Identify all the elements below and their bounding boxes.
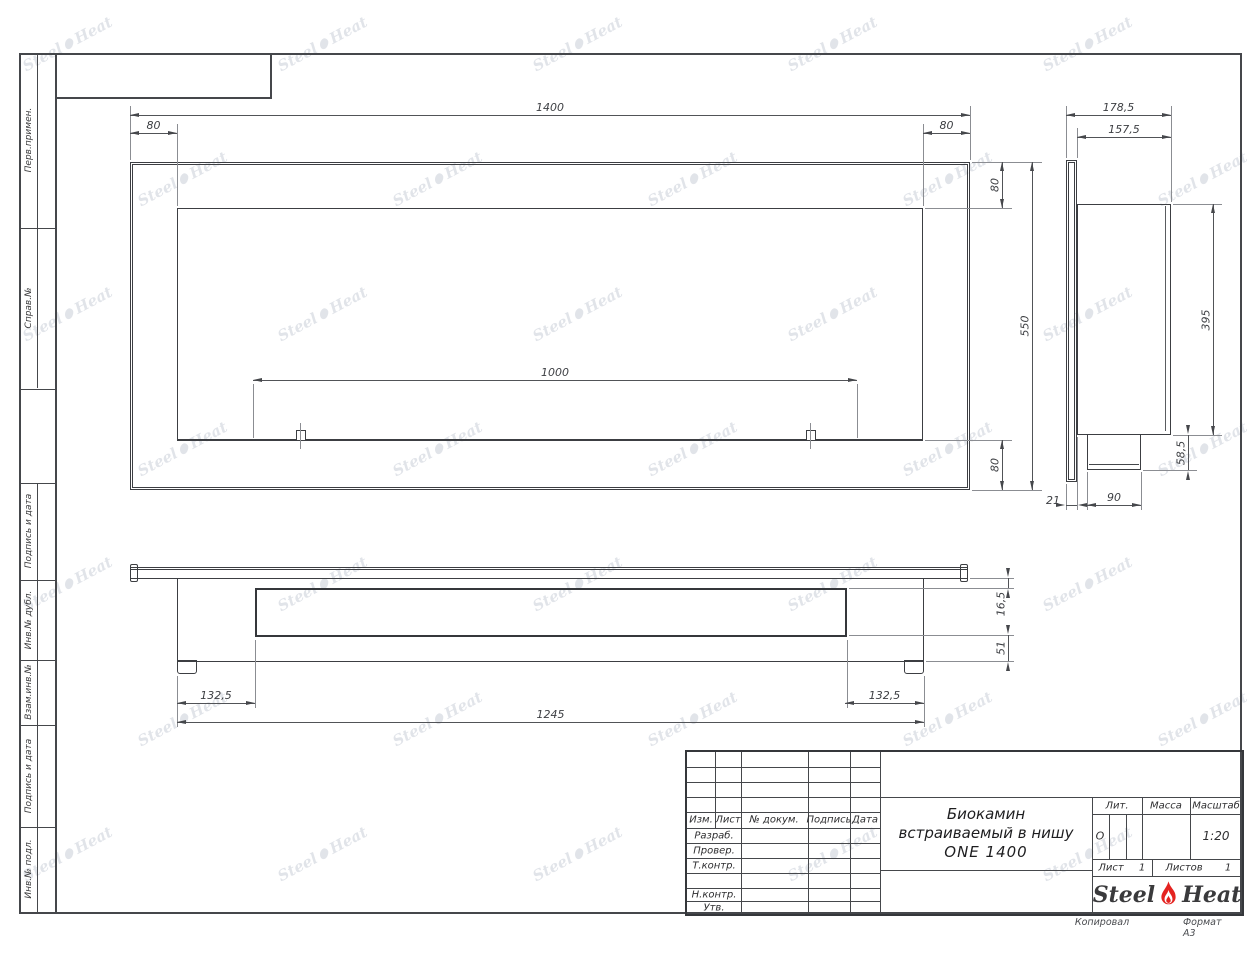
dim-side-box-depth: 90 bbox=[1087, 505, 1141, 506]
extension-line bbox=[923, 124, 924, 206]
logo-text-steel: Steel bbox=[1093, 882, 1155, 908]
extension-line bbox=[849, 635, 1014, 636]
document-name-line3: ONE 1400 bbox=[944, 843, 1027, 862]
extension-line bbox=[857, 384, 858, 438]
side-view-body bbox=[1077, 204, 1171, 435]
margin-divider bbox=[19, 827, 55, 828]
extension-line bbox=[1141, 472, 1142, 510]
bottom-view-flange-cap-left bbox=[130, 564, 138, 582]
extension-line bbox=[1077, 437, 1078, 510]
flame-icon bbox=[1159, 881, 1178, 907]
extension-line bbox=[926, 661, 1014, 662]
extension-line bbox=[847, 640, 848, 708]
dim-front-bottom-height: 80 bbox=[1002, 440, 1003, 490]
margin-divider bbox=[19, 725, 55, 726]
extension-line bbox=[1173, 435, 1222, 436]
title-block-line bbox=[687, 858, 880, 859]
title-block-line bbox=[808, 752, 809, 914]
margin-divider bbox=[37, 53, 38, 388]
logo-text-heat: Heat bbox=[1182, 882, 1241, 908]
title-block-line bbox=[1109, 814, 1110, 859]
margin-cells-top bbox=[19, 53, 57, 390]
document-name-line2: встраиваемый в нишу bbox=[899, 824, 1074, 843]
tb-lit-value: О bbox=[1096, 830, 1105, 843]
margin-label-inv-podl: Инв.№ подл. bbox=[24, 839, 34, 898]
tb-lit-label: Лит. bbox=[1105, 801, 1128, 812]
extension-line bbox=[1077, 128, 1078, 158]
extension-line bbox=[924, 676, 925, 727]
tb-row-nkontr: Н.контр. bbox=[692, 890, 737, 901]
dim-front-burner-width: 1000 bbox=[253, 380, 857, 381]
tb-row-tkontr: Т.контр. bbox=[692, 861, 735, 872]
dim-bottom-lip: 16,5 bbox=[1008, 578, 1009, 588]
title-block-line bbox=[687, 843, 880, 844]
title-block-line bbox=[687, 873, 880, 874]
title-block-line bbox=[1142, 797, 1143, 859]
margin-divider bbox=[37, 483, 38, 912]
margin-label-vzam-inv: Взам.инв.№ bbox=[24, 664, 34, 719]
extension-line bbox=[925, 440, 1012, 441]
extension-line bbox=[255, 640, 256, 708]
dim-side-box-height: 58,5 bbox=[1188, 435, 1189, 470]
margin-label-sprav-no: Справ.№ bbox=[24, 288, 34, 329]
dim-front-top-height: 80 bbox=[1002, 162, 1003, 208]
tb-sheets-label: Листов bbox=[1165, 863, 1202, 874]
margin-divider bbox=[19, 580, 55, 581]
document-name-line1: Биокамин bbox=[947, 805, 1025, 824]
steelheat-logo: Steel Heat bbox=[1092, 876, 1242, 914]
title-block-line bbox=[1126, 814, 1127, 859]
tb-massa-label: Масса bbox=[1150, 801, 1182, 812]
side-view-burner-box-bottom-line bbox=[1089, 464, 1139, 465]
dim-front-inset-right: 80 bbox=[923, 133, 970, 134]
margin-label-inv-dubl: Инв.№ дубл. bbox=[24, 591, 34, 650]
dim-bottom-foot: 51 bbox=[1008, 635, 1009, 661]
margin-label-podpis-data-1: Подпись и дата bbox=[24, 494, 34, 569]
burner-clip-right bbox=[806, 430, 816, 441]
tb-scale-value: 1:20 bbox=[1203, 829, 1230, 843]
dim-front-total-width: 1400 bbox=[130, 115, 970, 116]
tb-sheets-value: 1 bbox=[1225, 863, 1231, 874]
bottom-view-flange-cap-right bbox=[960, 564, 968, 582]
tb-sheet-value: 1 bbox=[1139, 863, 1145, 874]
drawing-sheet: SteelHeatSteelHeatSteelHeatSteelHeatStee… bbox=[0, 0, 1255, 970]
bottom-view-foot-left bbox=[177, 660, 197, 674]
bottom-view-foot-right bbox=[904, 660, 924, 674]
burner-clip-left bbox=[296, 430, 306, 441]
extension-line bbox=[177, 124, 178, 206]
margin-divider bbox=[19, 228, 55, 229]
designation-box-top-left bbox=[55, 53, 272, 99]
title-block-line bbox=[1092, 814, 1242, 815]
margin-label-perv-primen: Перв.примен. bbox=[24, 108, 34, 173]
dim-side-depth-total: 178,5 bbox=[1066, 115, 1171, 116]
extension-line bbox=[970, 106, 971, 160]
title-block-line bbox=[741, 752, 742, 914]
dim-front-total-height: 550 bbox=[1032, 162, 1033, 490]
title-block-line bbox=[850, 752, 851, 914]
side-view-body-wall-line bbox=[1165, 206, 1166, 431]
title-block-line bbox=[1152, 859, 1153, 876]
title-block-line bbox=[687, 767, 880, 768]
title-block-line bbox=[687, 812, 880, 813]
dim-bottom-body-width: 1245 bbox=[177, 722, 924, 723]
dim-front-inset-left: 80 bbox=[130, 133, 177, 134]
title-block-line bbox=[687, 828, 880, 829]
title-block-line bbox=[880, 870, 1092, 871]
side-view-flange bbox=[1066, 160, 1077, 482]
dim-bottom-offset-left: 132,5 bbox=[177, 703, 255, 704]
extension-line bbox=[925, 208, 1012, 209]
tb-scale-label: Масштаб bbox=[1192, 801, 1240, 812]
footer-copied-label: Копировал bbox=[1075, 917, 1129, 928]
tb-col-date: Дата bbox=[852, 815, 878, 826]
tb-col-doc: № докум. bbox=[749, 815, 798, 826]
title-block-line bbox=[1092, 859, 1242, 860]
tb-row-prover: Провер. bbox=[693, 846, 735, 857]
margin-divider bbox=[19, 660, 55, 661]
dim-side-flange-depth: 21 bbox=[1066, 505, 1077, 506]
dim-side-depth-body: 157,5 bbox=[1077, 137, 1171, 138]
tb-col-izm: Изм. bbox=[689, 815, 713, 826]
title-block-line bbox=[687, 782, 880, 783]
bottom-view-opening bbox=[255, 588, 847, 637]
title-block: Изм. Лист № докум. Подпись Дата Разраб. … bbox=[685, 750, 1244, 916]
tb-sheet-label: Лист bbox=[1098, 863, 1123, 874]
margin-label-podpis-data-2: Подпись и дата bbox=[24, 739, 34, 814]
document-name: Биокамин встраиваемый в нишу ONE 1400 bbox=[880, 797, 1092, 870]
tb-col-sign: Подпись bbox=[807, 815, 852, 826]
tb-row-razrab: Разраб. bbox=[694, 831, 733, 842]
extension-line bbox=[253, 384, 254, 438]
dim-side-body-height: 395 bbox=[1213, 204, 1214, 435]
extension-line bbox=[972, 490, 1042, 491]
footer-format-label: Формат А3 bbox=[1183, 917, 1231, 939]
extension-line bbox=[1171, 106, 1172, 202]
front-view-opening bbox=[177, 208, 923, 441]
tb-col-list: Лист bbox=[715, 815, 740, 826]
tb-row-utv: Утв. bbox=[704, 903, 725, 914]
extension-line bbox=[1066, 484, 1067, 510]
extension-line bbox=[849, 588, 1014, 589]
dim-bottom-offset-right: 132,5 bbox=[845, 703, 924, 704]
title-block-line bbox=[1190, 797, 1191, 859]
